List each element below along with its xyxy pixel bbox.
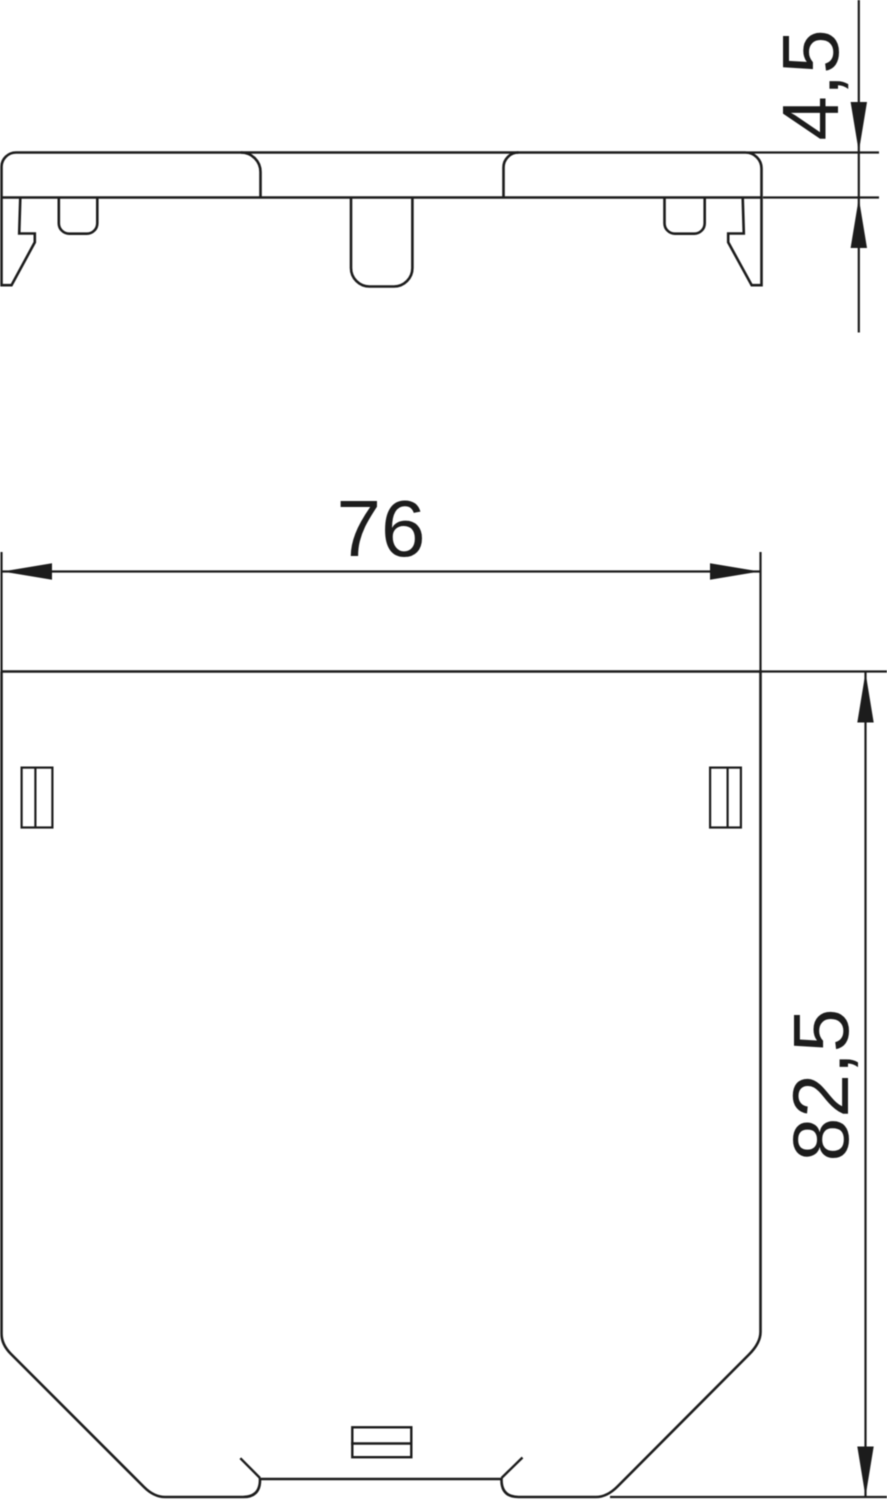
svg-text:82,5: 82,5 [777,1009,865,1162]
svg-text:4,5: 4,5 [766,29,855,140]
svg-text:76: 76 [337,484,426,573]
